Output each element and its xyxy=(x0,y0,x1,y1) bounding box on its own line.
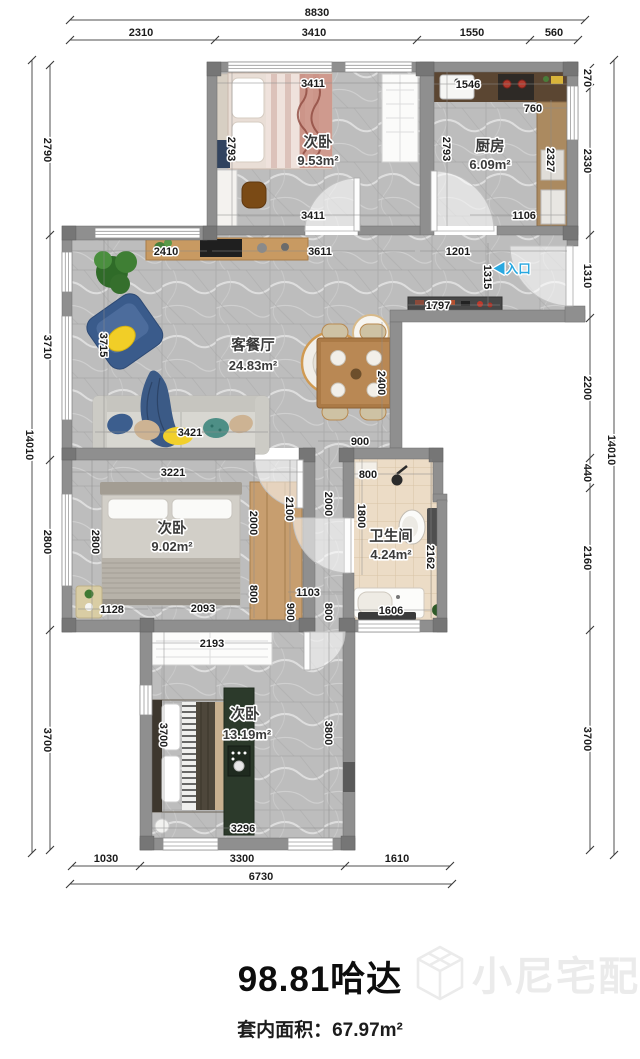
tv xyxy=(200,239,242,257)
dimension-label: 1315 xyxy=(481,265,493,289)
dimension-label: 2793 xyxy=(225,137,237,161)
window xyxy=(567,86,578,140)
dimension-label: 1610 xyxy=(385,853,409,865)
dimension-label: 2100 xyxy=(283,497,295,521)
dimension-label: 14010 xyxy=(605,435,617,466)
pillow xyxy=(108,499,168,519)
dimension-label: 2200 xyxy=(581,376,593,400)
dimension-label: 3715 xyxy=(97,333,109,357)
dimension-label: 2000 xyxy=(247,511,259,535)
room-name: 次卧 xyxy=(304,133,333,151)
dimension-label: 2800 xyxy=(89,530,101,554)
dimension-label: 3611 xyxy=(308,246,332,258)
dimension-label: 3410 xyxy=(302,27,326,39)
room-area: 9.02m² xyxy=(151,539,193,554)
pillow xyxy=(172,499,232,519)
room-area: 4.24m² xyxy=(370,547,412,562)
stool xyxy=(155,819,169,833)
room-name: 次卧 xyxy=(158,519,187,537)
dimension-label: 2790 xyxy=(41,138,53,162)
dimension-label: 1030 xyxy=(94,853,118,865)
room-name: 卫生间 xyxy=(369,527,413,545)
entrance-label: ◀入口 xyxy=(493,261,531,276)
window xyxy=(95,228,200,238)
dimension-label: 1550 xyxy=(460,27,484,39)
dimension-label: 2410 xyxy=(154,246,178,258)
dimension-label: 6730 xyxy=(249,871,273,883)
window xyxy=(62,494,72,586)
dimension-label: 3221 xyxy=(161,467,185,479)
dimension-label: 2160 xyxy=(581,546,593,570)
dimension-label: 800 xyxy=(359,469,377,481)
dimension-label: 2162 xyxy=(424,545,436,569)
dimension-label: 2330 xyxy=(581,149,593,173)
dimension-label: 270 xyxy=(581,69,593,87)
ac-unit xyxy=(343,762,355,792)
pillow xyxy=(232,78,264,118)
dimension-label: 900 xyxy=(284,603,296,621)
chair xyxy=(242,182,266,208)
dimension-label: 14010 xyxy=(23,430,35,461)
dimension-label: 1128 xyxy=(100,604,124,616)
rug xyxy=(215,702,224,810)
room-area: 13.19m² xyxy=(223,727,272,742)
dimension-label: 1546 xyxy=(456,79,480,91)
dimension-label: 440 xyxy=(581,464,593,482)
window xyxy=(140,685,152,715)
window xyxy=(228,62,332,72)
room-area: 9.53m² xyxy=(297,153,339,168)
dimension-label: 3700 xyxy=(157,723,169,747)
dimension-label: 1201 xyxy=(446,246,470,258)
dimension-label: 2800 xyxy=(41,530,53,554)
dimension-label: 2193 xyxy=(200,638,224,650)
plan-title: 98.81哈达 xyxy=(0,951,640,1002)
blanket xyxy=(102,558,240,600)
room-area: 24.83m² xyxy=(229,358,278,373)
dimension-label: 760 xyxy=(524,103,542,115)
dimension-label: 2000 xyxy=(322,492,334,516)
window xyxy=(62,252,72,292)
pillow xyxy=(162,756,180,802)
dimension-label: 560 xyxy=(545,27,563,39)
dimension-label: 2400 xyxy=(375,371,387,395)
dimension-label: 900 xyxy=(351,436,369,448)
dimension-label: 3700 xyxy=(41,728,53,752)
room-name: 次卧 xyxy=(231,705,260,723)
room-area: 6.09m² xyxy=(469,157,511,172)
dimension-label: 2093 xyxy=(191,603,215,615)
dimension-label: 1103 xyxy=(296,587,320,599)
dimension-label: 1606 xyxy=(379,605,403,617)
dimension-label: 3296 xyxy=(231,823,255,835)
stove xyxy=(498,74,534,100)
shower-head xyxy=(392,475,403,486)
dimension-label: 1800 xyxy=(355,504,367,528)
dimension-label: 800 xyxy=(322,603,334,621)
window xyxy=(163,838,218,850)
dimension-label: 2327 xyxy=(544,148,556,172)
dimension-label: 1797 xyxy=(426,300,450,312)
dimension-label: 3800 xyxy=(322,721,334,745)
window xyxy=(62,316,72,420)
dimension-label: 3300 xyxy=(230,853,254,865)
dimension-label: 800 xyxy=(247,585,259,603)
dimension-label: 3411 xyxy=(301,210,325,222)
headboard xyxy=(100,482,242,495)
dimension-label: 3700 xyxy=(581,727,593,751)
window xyxy=(288,838,333,850)
desk xyxy=(217,170,237,226)
dimension-label: 1106 xyxy=(512,210,536,222)
room-name: 客餐厅 xyxy=(230,336,275,354)
blanket xyxy=(196,702,215,810)
window xyxy=(358,620,420,632)
dimension-label: 3411 xyxy=(301,78,325,90)
dimension-label: 2310 xyxy=(129,27,153,39)
dimension-label: 2793 xyxy=(440,137,452,161)
dimension-label: 1310 xyxy=(581,264,593,288)
floor-plan: 8830231034101550560103033001610673027903… xyxy=(0,0,640,915)
room-name: 厨房 xyxy=(476,137,505,155)
window xyxy=(345,62,412,72)
dimension-label: 3421 xyxy=(178,427,202,439)
dimension-label: 3710 xyxy=(41,335,53,359)
plan-subtitle: 套内面积：67.97m² xyxy=(0,1015,640,1042)
fridge xyxy=(541,190,565,224)
dimension-label: 8830 xyxy=(305,7,329,19)
